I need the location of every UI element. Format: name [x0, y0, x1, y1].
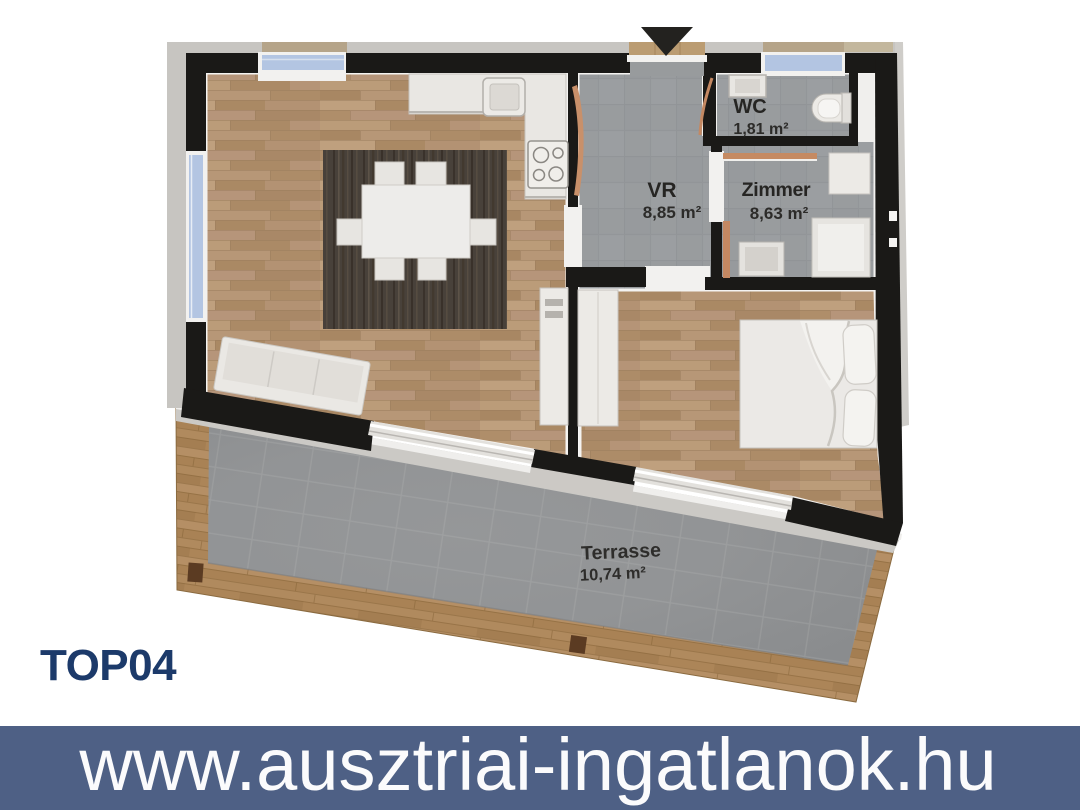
svg-text:Zimmer: Zimmer: [742, 179, 811, 201]
svg-text:10,74 m²: 10,74 m²: [580, 564, 647, 585]
svg-text:VR: VR: [647, 179, 676, 202]
svg-text:Terrasse: Terrasse: [581, 539, 662, 564]
svg-text:8,85 m²: 8,85 m²: [643, 203, 702, 222]
svg-text:8,63 m²: 8,63 m²: [750, 204, 809, 223]
svg-text:WC: WC: [733, 96, 766, 118]
svg-text:TOP04: TOP04: [40, 641, 177, 690]
svg-text:1,81 m²: 1,81 m²: [733, 121, 788, 138]
svg-text:www.ausztriai-ingatlanok.hu: www.ausztriai-ingatlanok.hu: [78, 723, 996, 806]
